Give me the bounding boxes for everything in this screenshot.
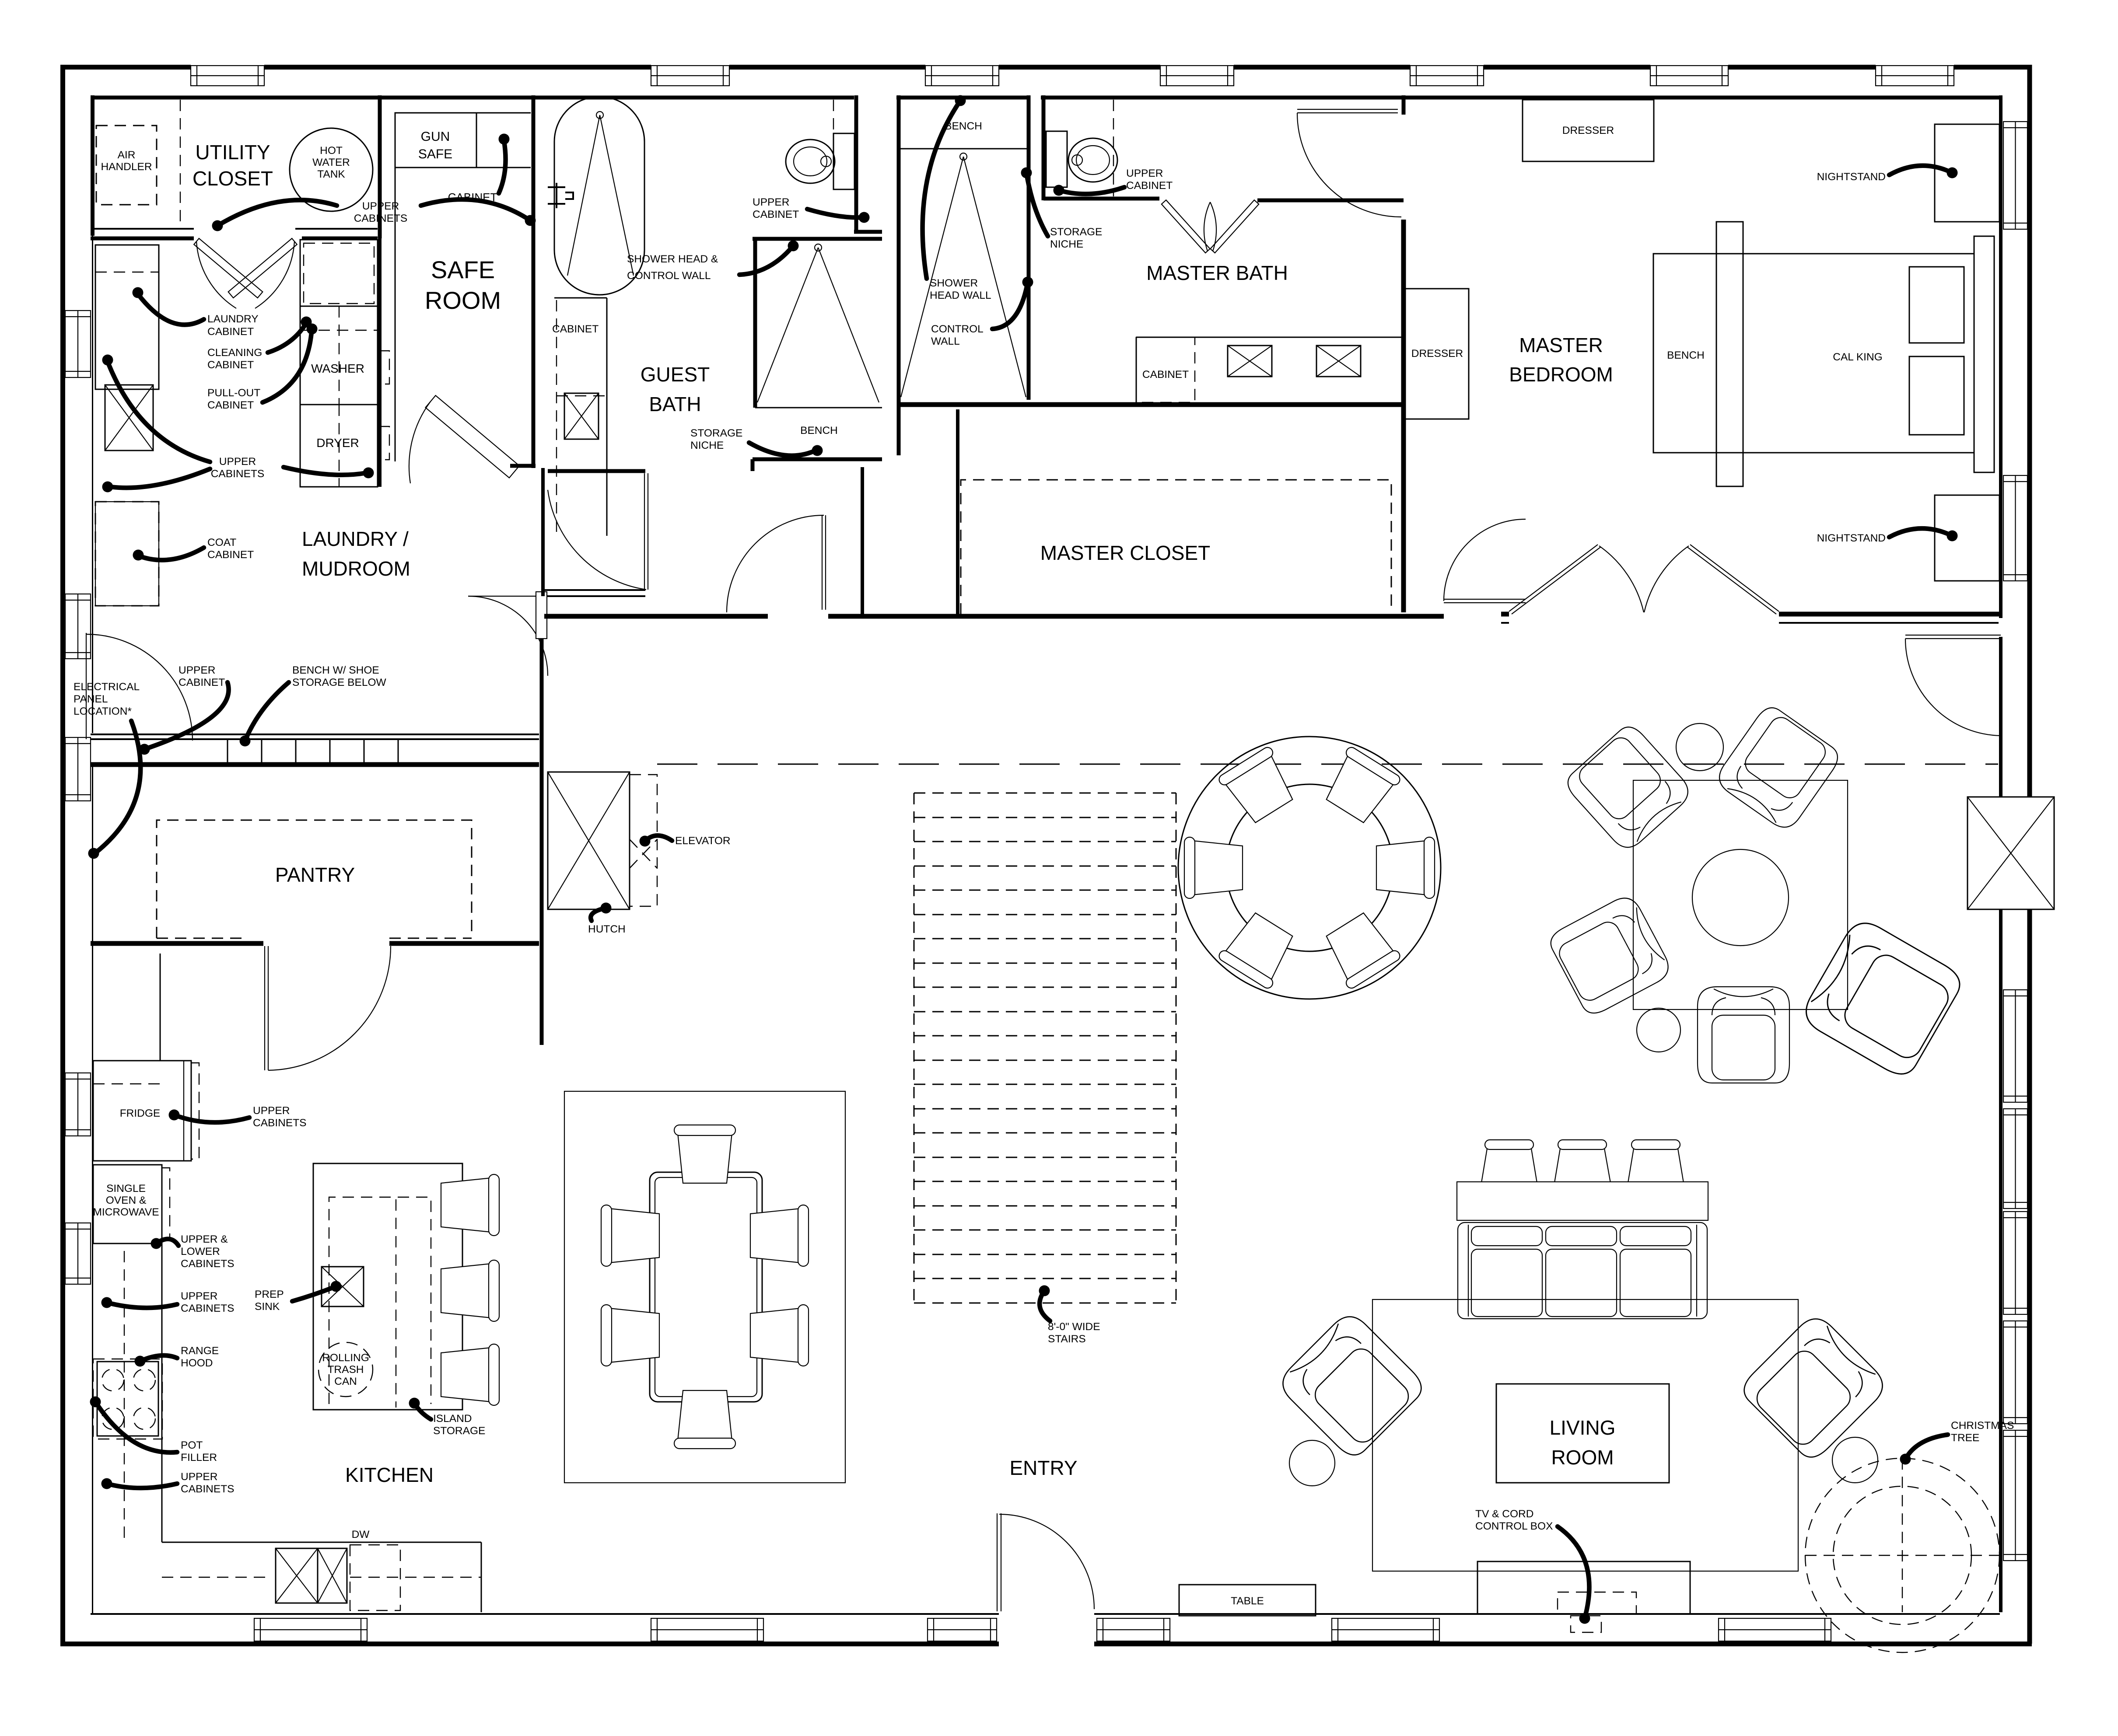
svg-text:CABINET: CABINET bbox=[179, 677, 225, 688]
svg-text:TREE: TREE bbox=[1951, 1432, 1979, 1444]
svg-text:CABINETS: CABINETS bbox=[181, 1483, 235, 1495]
svg-text:CABINET: CABINET bbox=[207, 359, 254, 371]
svg-text:FILLER: FILLER bbox=[181, 1452, 217, 1464]
svg-text:HUTCH: HUTCH bbox=[588, 923, 626, 935]
svg-text:8'-0" WIDE: 8'-0" WIDE bbox=[1048, 1321, 1100, 1333]
svg-text:SAFE: SAFE bbox=[418, 147, 452, 161]
svg-text:HANDLER: HANDLER bbox=[101, 161, 152, 173]
svg-text:NIGHTSTAND: NIGHTSTAND bbox=[1817, 171, 1886, 183]
svg-text:STORAGE: STORAGE bbox=[433, 1425, 485, 1437]
svg-text:UPPER &: UPPER & bbox=[181, 1233, 228, 1245]
svg-text:ROLLING: ROLLING bbox=[322, 1352, 369, 1364]
svg-text:ISLAND: ISLAND bbox=[433, 1413, 472, 1425]
svg-text:TV & CORD: TV & CORD bbox=[1475, 1508, 1533, 1520]
svg-text:MASTER: MASTER bbox=[1519, 334, 1603, 356]
svg-text:UPPER: UPPER bbox=[181, 1471, 217, 1483]
svg-text:LAUNDRY: LAUNDRY bbox=[207, 313, 259, 325]
svg-text:CONTROL BOX: CONTROL BOX bbox=[1475, 1520, 1553, 1532]
svg-text:CABINET: CABINET bbox=[753, 209, 799, 220]
svg-text:UPPER: UPPER bbox=[219, 456, 256, 468]
svg-text:WATER: WATER bbox=[312, 157, 350, 168]
svg-text:DRESSER: DRESSER bbox=[1411, 348, 1463, 360]
svg-text:CONTROL: CONTROL bbox=[931, 323, 984, 335]
svg-text:UTILITY: UTILITY bbox=[195, 141, 270, 164]
svg-text:SINGLE: SINGLE bbox=[106, 1183, 146, 1195]
svg-text:SINK: SINK bbox=[255, 1301, 280, 1313]
svg-text:CABINET: CABINET bbox=[448, 191, 497, 204]
svg-text:STAIRS: STAIRS bbox=[1048, 1333, 1086, 1345]
svg-text:CABINET: CABINET bbox=[207, 326, 254, 338]
svg-text:SHOWER HEAD &: SHOWER HEAD & bbox=[627, 253, 718, 265]
svg-text:TRASH: TRASH bbox=[327, 1364, 364, 1376]
svg-text:FRIDGE: FRIDGE bbox=[120, 1107, 161, 1119]
svg-text:NICHE: NICHE bbox=[1050, 238, 1083, 250]
svg-text:CABINETS: CABINETS bbox=[211, 468, 265, 480]
svg-text:CABINET: CABINET bbox=[1142, 369, 1189, 381]
svg-text:TANK: TANK bbox=[317, 168, 345, 180]
svg-text:CHRISTMAS: CHRISTMAS bbox=[1951, 1420, 2014, 1432]
svg-text:ROOM: ROOM bbox=[1551, 1446, 1614, 1469]
svg-text:MASTER BATH: MASTER BATH bbox=[1146, 262, 1288, 284]
svg-text:CAL KING: CAL KING bbox=[1833, 351, 1882, 363]
svg-text:MASTER CLOSET: MASTER CLOSET bbox=[1040, 541, 1211, 564]
svg-text:UPPER: UPPER bbox=[179, 664, 215, 676]
svg-text:HEAD WALL: HEAD WALL bbox=[930, 290, 991, 301]
svg-text:DW: DW bbox=[352, 1529, 370, 1540]
svg-text:WASHER: WASHER bbox=[311, 362, 364, 375]
svg-text:NIGHTSTAND: NIGHTSTAND bbox=[1817, 532, 1886, 544]
svg-text:POT: POT bbox=[181, 1439, 203, 1451]
svg-text:MICROWAVE: MICROWAVE bbox=[93, 1206, 159, 1218]
svg-text:KITCHEN: KITCHEN bbox=[345, 1464, 434, 1486]
svg-text:BEDROOM: BEDROOM bbox=[1509, 363, 1613, 386]
svg-text:CABINET: CABINET bbox=[1126, 180, 1173, 192]
svg-text:DRYER: DRYER bbox=[316, 436, 359, 450]
svg-text:SAFE: SAFE bbox=[431, 256, 495, 283]
svg-text:LAUNDRY /: LAUNDRY / bbox=[302, 527, 409, 550]
svg-text:HOT: HOT bbox=[320, 145, 343, 157]
svg-text:PULL-OUT: PULL-OUT bbox=[207, 387, 260, 399]
svg-text:MUDROOM: MUDROOM bbox=[302, 557, 410, 580]
svg-text:AIR: AIR bbox=[118, 149, 136, 161]
svg-text:BATH: BATH bbox=[649, 393, 701, 416]
svg-text:GUN: GUN bbox=[421, 129, 450, 144]
svg-text:LOCATION*: LOCATION* bbox=[74, 706, 132, 717]
svg-text:OVEN &: OVEN & bbox=[106, 1195, 147, 1206]
svg-text:UPPER: UPPER bbox=[253, 1105, 290, 1117]
svg-text:PANTRY: PANTRY bbox=[275, 863, 355, 886]
svg-text:CABINETS: CABINETS bbox=[253, 1117, 307, 1129]
svg-text:CABINET: CABINET bbox=[207, 549, 254, 561]
svg-text:TABLE: TABLE bbox=[1231, 1595, 1264, 1607]
svg-text:PREP: PREP bbox=[255, 1289, 284, 1300]
svg-text:BENCH: BENCH bbox=[1667, 349, 1705, 361]
svg-text:UPPER: UPPER bbox=[1126, 168, 1163, 179]
svg-text:CLOSET: CLOSET bbox=[193, 167, 273, 190]
svg-text:SHOWER: SHOWER bbox=[930, 277, 978, 289]
svg-text:STORAGE BELOW: STORAGE BELOW bbox=[292, 677, 387, 688]
svg-text:CABINETS: CABINETS bbox=[181, 1258, 235, 1270]
svg-text:RANGE: RANGE bbox=[181, 1345, 219, 1357]
svg-text:NICHE: NICHE bbox=[690, 440, 724, 451]
svg-text:HOOD: HOOD bbox=[181, 1357, 213, 1369]
svg-text:ENTRY: ENTRY bbox=[1009, 1457, 1077, 1479]
svg-text:ELECTRICAL: ELECTRICAL bbox=[74, 681, 140, 693]
svg-text:UPPER: UPPER bbox=[181, 1290, 217, 1302]
svg-text:GUEST: GUEST bbox=[641, 363, 710, 386]
svg-text:PANEL: PANEL bbox=[74, 693, 108, 705]
svg-text:UPPER: UPPER bbox=[753, 196, 789, 208]
svg-text:BENCH: BENCH bbox=[945, 120, 982, 132]
svg-text:CABINETS: CABINETS bbox=[181, 1303, 235, 1314]
svg-text:STORAGE: STORAGE bbox=[1050, 226, 1102, 238]
svg-text:BENCH W/ SHOE: BENCH W/ SHOE bbox=[292, 664, 379, 676]
svg-text:CAN: CAN bbox=[334, 1376, 357, 1387]
svg-text:WALL: WALL bbox=[931, 335, 960, 347]
svg-text:CABINET: CABINET bbox=[552, 323, 599, 335]
svg-text:DRESSER: DRESSER bbox=[1562, 125, 1614, 136]
svg-text:LIVING: LIVING bbox=[1550, 1416, 1616, 1439]
svg-text:BENCH: BENCH bbox=[800, 425, 838, 437]
svg-text:ROOM: ROOM bbox=[425, 286, 501, 314]
svg-text:CONTROL WALL: CONTROL WALL bbox=[627, 270, 711, 282]
svg-text:STORAGE: STORAGE bbox=[690, 427, 742, 439]
svg-text:LOWER: LOWER bbox=[181, 1246, 220, 1257]
svg-text:CLEANING: CLEANING bbox=[207, 347, 262, 359]
svg-text:COAT: COAT bbox=[207, 537, 236, 548]
svg-text:CABINET: CABINET bbox=[207, 399, 254, 411]
svg-text:ELEVATOR: ELEVATOR bbox=[675, 835, 731, 847]
